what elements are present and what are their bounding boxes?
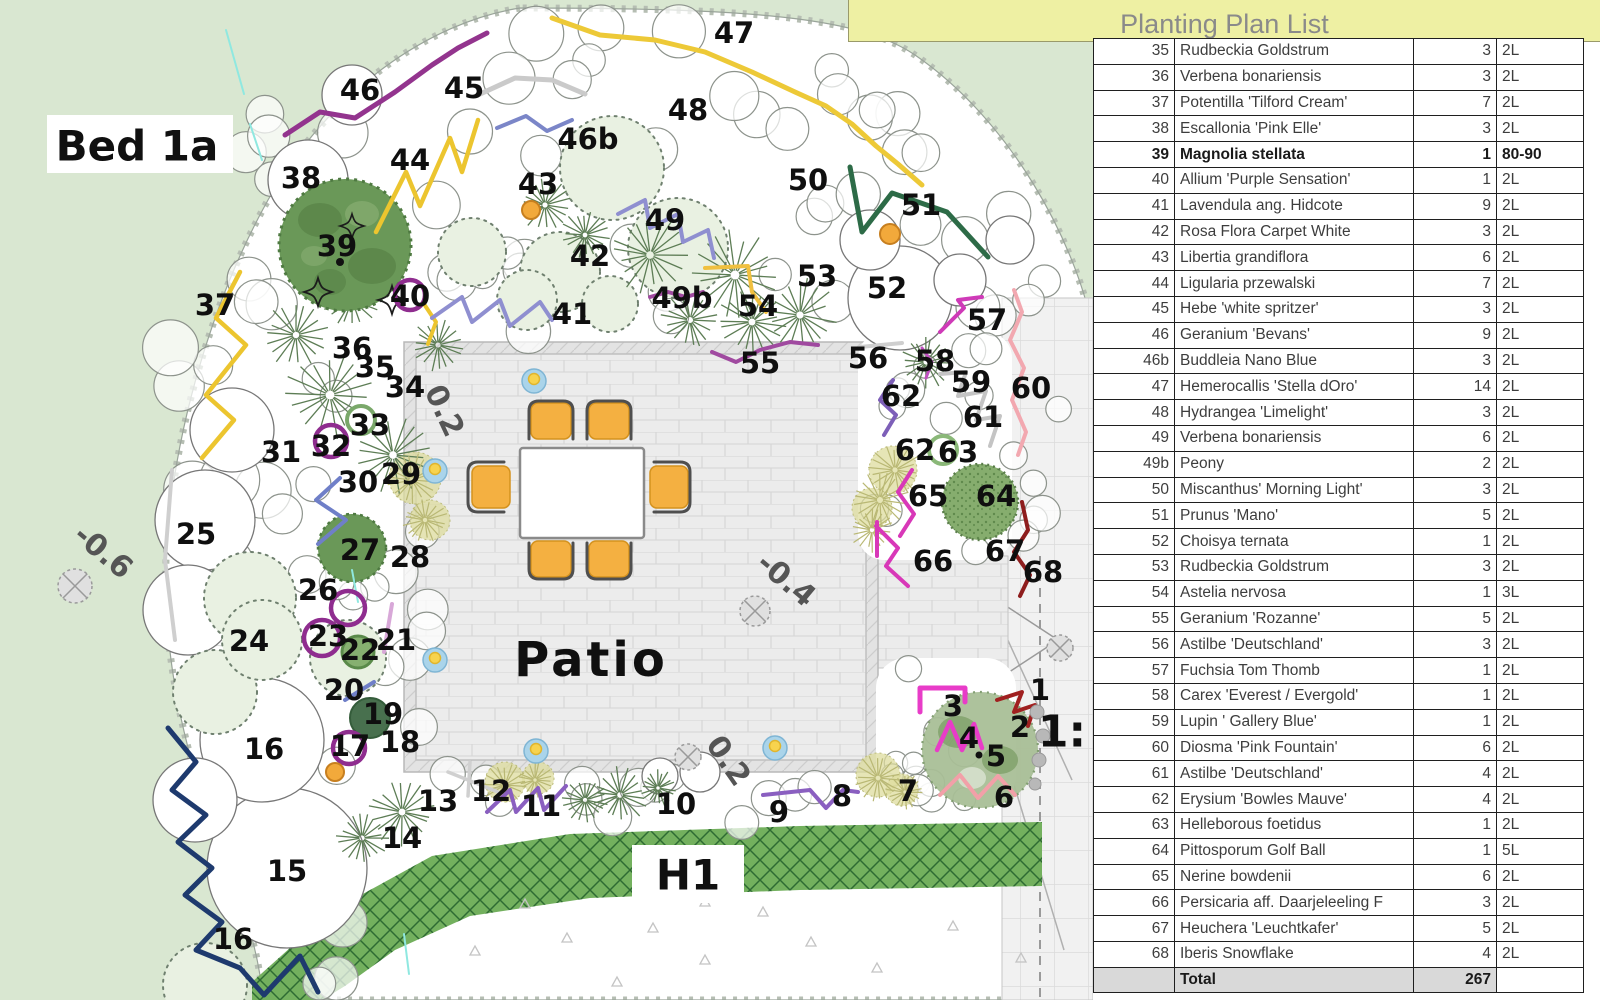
cell-name: Choisya ternata (1175, 529, 1414, 555)
cell-qty: 3 (1414, 477, 1497, 503)
cell-size: 2L (1497, 658, 1584, 684)
cell-name: Erysium 'Bowles Mauve' (1175, 787, 1414, 813)
patio-area (404, 342, 878, 772)
cell-no: 50 (1094, 477, 1175, 503)
cell-qty: 1 (1414, 580, 1497, 606)
plan-label-63: 63 (938, 435, 978, 469)
plan-label-55: 55 (740, 346, 780, 380)
plan-label-62: 62 (881, 379, 921, 413)
cell-no: 51 (1094, 503, 1175, 529)
table-row: 62Erysium 'Bowles Mauve'42L (1094, 787, 1584, 813)
cell-qty: 1 (1414, 658, 1497, 684)
cell-size: 2L (1497, 916, 1584, 942)
light-icon (522, 369, 546, 393)
plan-label-59: 59 (951, 365, 991, 399)
plan-label-49: 49 (645, 203, 685, 237)
cell-size (1497, 967, 1584, 993)
cell-qty: 3 (1414, 219, 1497, 245)
cell-name: Astilbe 'Deutschland' (1175, 761, 1414, 787)
table-row: 50Miscanthus' Morning Light'32L (1094, 477, 1584, 503)
table-row: 64Pittosporum Golf Ball15L (1094, 838, 1584, 864)
cell-name: Pittosporum Golf Ball (1175, 838, 1414, 864)
cell-size: 5L (1497, 838, 1584, 864)
plan-label-9: 9 (769, 795, 789, 829)
table-row: 40Allium 'Purple Sensation'12L (1094, 167, 1584, 193)
plan-label-49b: 49b (651, 281, 712, 315)
plan-label-22: 22 (340, 633, 380, 667)
scale-label: 1: (1038, 707, 1086, 758)
cell-no: 36 (1094, 64, 1175, 90)
cell-qty: 7 (1414, 271, 1497, 297)
cell-no: 43 (1094, 245, 1175, 271)
cell-name: Geranium 'Rozanne' (1175, 606, 1414, 632)
cell-name: Miscanthus' Morning Light' (1175, 477, 1414, 503)
cell-no: 38 (1094, 116, 1175, 142)
table-row: 35Rudbeckia Goldstrum32L (1094, 39, 1584, 65)
plan-label-60: 60 (1011, 371, 1051, 405)
cell-size: 2L (1497, 890, 1584, 916)
cell-no: 54 (1094, 580, 1175, 606)
light-icon (524, 739, 548, 763)
cell-size: 80-90 (1497, 142, 1584, 168)
plan-label-30: 30 (338, 465, 378, 499)
survey-circle-icon (1047, 635, 1073, 661)
plan-label-36: 36 (332, 331, 372, 365)
cell-size: 2L (1497, 812, 1584, 838)
cell-name: Peony (1175, 451, 1414, 477)
cell-name: Potentilla 'Tilford Cream' (1175, 90, 1414, 116)
plan-label-25: 25 (176, 517, 216, 551)
cell-qty: 3 (1414, 296, 1497, 322)
plan-label-5: 5 (986, 739, 1006, 773)
cell-name: Hydrangea 'Limelight' (1175, 400, 1414, 426)
plan-label-42: 42 (570, 239, 610, 273)
plan-label-61: 61 (963, 400, 1003, 434)
table-row: 42Rosa Flora Carpet White32L (1094, 219, 1584, 245)
survey-circle-icon (740, 596, 770, 626)
cell-name: Verbena bonariensis (1175, 64, 1414, 90)
cell-qty: 6 (1414, 864, 1497, 890)
cell-qty: 1 (1414, 838, 1497, 864)
plan-label-43: 43 (518, 167, 558, 201)
cell-qty: 7 (1414, 90, 1497, 116)
cell-size: 2L (1497, 864, 1584, 890)
plan-label-64: 64 (976, 479, 1016, 513)
cell-no: 47 (1094, 374, 1175, 400)
plan-label-28: 28 (390, 540, 430, 574)
plan-label-58: 58 (915, 344, 955, 378)
plan-label-10: 10 (656, 787, 696, 821)
stem-13b (468, 762, 470, 796)
cell-no: 46b (1094, 348, 1175, 374)
cell-qty: 1 (1414, 167, 1497, 193)
cell-name: Fuchsia Tom Thomb (1175, 658, 1414, 684)
cell-no: 45 (1094, 296, 1175, 322)
table-row: 43Libertia grandiflora62L (1094, 245, 1584, 271)
cell-no: 60 (1094, 735, 1175, 761)
plan-label-67: 67 (985, 534, 1025, 568)
plan-label-39: 39 (317, 229, 357, 263)
cell-name: Geranium 'Bevans' (1175, 322, 1414, 348)
cell-qty: 3 (1414, 116, 1497, 142)
cell-no: 59 (1094, 709, 1175, 735)
dot-52-orange (880, 224, 900, 244)
plan-label-38: 38 (281, 161, 321, 195)
table-row: 45Hebe 'white spritzer'32L (1094, 296, 1584, 322)
cell-name: Allium 'Purple Sensation' (1175, 167, 1414, 193)
plan-label-46: 46 (340, 73, 380, 107)
cell-qty: 3 (1414, 348, 1497, 374)
cell-qty: 3 (1414, 64, 1497, 90)
plan-label-48: 48 (668, 93, 708, 127)
cell-size: 2L (1497, 90, 1584, 116)
plan-label-27: 27 (340, 533, 380, 567)
plan-label-16: 16 (213, 922, 253, 956)
table-row: 39Magnolia stellata180-90 (1094, 142, 1584, 168)
table-row: 48Hydrangea 'Limelight'32L (1094, 400, 1584, 426)
table-row: 54Astelia nervosa13L (1094, 580, 1584, 606)
plan-label-50: 50 (788, 163, 828, 197)
cell-qty: 6 (1414, 735, 1497, 761)
cell-name: Lavendula ang. Hidcote (1175, 193, 1414, 219)
cell-name: Hemerocallis 'Stella dOro' (1175, 374, 1414, 400)
light-icon (423, 459, 447, 483)
cell-no (1094, 967, 1175, 993)
cell-size: 2L (1497, 554, 1584, 580)
plan-label-18: 18 (380, 725, 420, 759)
cell-qty: 4 (1414, 941, 1497, 967)
cell-no: 55 (1094, 606, 1175, 632)
dot-43-orange (522, 201, 540, 219)
bed-title-label: Bed 1a (56, 122, 219, 171)
cell-size: 2L (1497, 529, 1584, 555)
cell-qty: 1 (1414, 529, 1497, 555)
planting-list-header: Planting Plan List (848, 0, 1600, 42)
cell-name: Rudbeckia Goldstrum (1175, 554, 1414, 580)
cell-name: Total (1175, 967, 1414, 993)
dot-17-orange (326, 763, 344, 781)
cell-name: Diosma 'Pink Fountain' (1175, 735, 1414, 761)
plant-table-body: 35Rudbeckia Goldstrum32L36Verbena bonari… (1094, 39, 1584, 993)
table-row: 66Persicaria aff. Daarjeleeling F32L (1094, 890, 1584, 916)
cell-no: 49b (1094, 451, 1175, 477)
table-row: 44Ligularia przewalski72L (1094, 271, 1584, 297)
cell-qty: 6 (1414, 425, 1497, 451)
cell-no: 62 (1094, 787, 1175, 813)
cell-qty: 3 (1414, 890, 1497, 916)
plan-label-21: 21 (376, 623, 416, 657)
table-row: 37Potentilla 'Tilford Cream'72L (1094, 90, 1584, 116)
cell-qty: 3 (1414, 39, 1497, 65)
cell-size: 3L (1497, 580, 1584, 606)
plan-label-2: 2 (1010, 710, 1030, 744)
cell-size: 2L (1497, 322, 1584, 348)
plan-label-57: 57 (967, 303, 1007, 337)
cell-name: Astilbe 'Deutschland' (1175, 632, 1414, 658)
cell-size: 2L (1497, 296, 1584, 322)
cell-size: 2L (1497, 709, 1584, 735)
table-row: 58Carex 'Everest / Evergold'12L (1094, 683, 1584, 709)
cell-qty: 9 (1414, 193, 1497, 219)
plan-label-24: 24 (229, 624, 269, 658)
cell-no: 64 (1094, 838, 1175, 864)
cell-size: 2L (1497, 761, 1584, 787)
plan-label-31: 31 (261, 435, 301, 469)
cell-size: 2L (1497, 193, 1584, 219)
cell-no: 40 (1094, 167, 1175, 193)
cell-qty: 4 (1414, 787, 1497, 813)
plan-label-17: 17 (330, 729, 370, 763)
cell-qty: 3 (1414, 400, 1497, 426)
cell-no: 39 (1094, 142, 1175, 168)
table-row: 38Escallonia 'Pink Elle'32L (1094, 116, 1584, 142)
plan-label-26: 26 (298, 573, 338, 607)
light-icon (763, 736, 787, 760)
table-row: 65Nerine bowdenii62L (1094, 864, 1584, 890)
cell-name: Hebe 'white spritzer' (1175, 296, 1414, 322)
table-row: 46Geranium 'Bevans'92L (1094, 322, 1584, 348)
plan-label-54: 54 (738, 289, 778, 323)
cell-name: Rudbeckia Goldstrum (1175, 39, 1414, 65)
cell-size: 2L (1497, 219, 1584, 245)
cell-qty: 5 (1414, 916, 1497, 942)
table-row: 59Lupin ' Gallery Blue'12L (1094, 709, 1584, 735)
plan-label-1: 1 (1030, 673, 1050, 707)
cell-no: 42 (1094, 219, 1175, 245)
plan-label-12: 12 (471, 774, 511, 808)
cell-qty: 6 (1414, 245, 1497, 271)
cell-qty: 3 (1414, 554, 1497, 580)
garden-plan: 4746454446b48384339374042494150515253544… (0, 0, 1093, 1000)
plan-label-11: 11 (521, 789, 561, 823)
cell-qty: 14 (1414, 374, 1497, 400)
cell-name: Rosa Flora Carpet White (1175, 219, 1414, 245)
cell-no: 67 (1094, 916, 1175, 942)
cell-name: Ligularia przewalski (1175, 271, 1414, 297)
plan-label-53: 53 (797, 259, 837, 293)
cell-qty: 4 (1414, 761, 1497, 787)
plan-label-65: 65 (908, 479, 948, 513)
plan-label-4: 4 (959, 721, 979, 755)
cell-no: 52 (1094, 529, 1175, 555)
plan-label-41: 41 (552, 297, 592, 331)
cell-size: 2L (1497, 477, 1584, 503)
cell-name: Heuchera 'Leuchtkafer' (1175, 916, 1414, 942)
table-row: 41Lavendula ang. Hidcote92L (1094, 193, 1584, 219)
cell-name: Buddleia Nano Blue (1175, 348, 1414, 374)
cell-name: Helleborous foetidus (1175, 812, 1414, 838)
survey-circle-icon (675, 744, 701, 770)
table-row: 55Geranium 'Rozanne'52L (1094, 606, 1584, 632)
cell-size: 2L (1497, 451, 1584, 477)
cell-qty: 1 (1414, 683, 1497, 709)
cell-qty: 1 (1414, 812, 1497, 838)
patio-label: Patio (514, 632, 668, 688)
cell-qty: 1 (1414, 142, 1497, 168)
cell-name: Carex 'Everest / Evergold' (1175, 683, 1414, 709)
plan-label-62: 62 (895, 433, 935, 467)
cell-size: 2L (1497, 374, 1584, 400)
plan-label-46b: 46b (557, 122, 618, 156)
table-total-row: Total267 (1094, 967, 1584, 993)
table-row: 60Diosma 'Pink Fountain'62L (1094, 735, 1584, 761)
plan-label-15: 15 (267, 854, 307, 888)
table-row: 57Fuchsia Tom Thomb12L (1094, 658, 1584, 684)
table-row: 63Helleborous foetidus12L (1094, 812, 1584, 838)
cell-name: Verbena bonariensis (1175, 425, 1414, 451)
cell-name: Libertia grandiflora (1175, 245, 1414, 271)
cell-size: 2L (1497, 116, 1584, 142)
plan-label-44: 44 (390, 143, 430, 177)
plan-label-51: 51 (901, 188, 941, 222)
planting-list-title: Planting Plan List (1120, 10, 1329, 41)
cell-name: Persicaria aff. Daarjeleeling F (1175, 890, 1414, 916)
cell-size: 2L (1497, 425, 1584, 451)
table-row: 36Verbena bonariensis32L (1094, 64, 1584, 90)
cell-name: Lupin ' Gallery Blue' (1175, 709, 1414, 735)
cell-name: Escallonia 'Pink Elle' (1175, 116, 1414, 142)
cell-no: 48 (1094, 400, 1175, 426)
table-row: 56Astilbe 'Deutschland'32L (1094, 632, 1584, 658)
cell-size: 2L (1497, 735, 1584, 761)
plan-label-37: 37 (195, 288, 235, 322)
cell-no: 53 (1094, 554, 1175, 580)
cell-size: 2L (1497, 39, 1584, 65)
patio-table (520, 448, 644, 538)
table-row: 51Prunus 'Mano'52L (1094, 503, 1584, 529)
plan-label-6: 6 (994, 780, 1014, 814)
plan-label-47: 47 (714, 16, 754, 50)
table-row: 49Verbena bonariensis62L (1094, 425, 1584, 451)
cell-no: 66 (1094, 890, 1175, 916)
plan-label-13: 13 (418, 784, 458, 818)
plan-label-45: 45 (444, 71, 484, 105)
cell-no: 49 (1094, 425, 1175, 451)
cell-no: 37 (1094, 90, 1175, 116)
cell-qty: 5 (1414, 503, 1497, 529)
cell-no: 57 (1094, 658, 1175, 684)
garden-plan-svg: 4746454446b48384339374042494150515253544… (0, 0, 1093, 1000)
cell-name: Iberis Snowflake (1175, 941, 1414, 967)
light-icon (423, 648, 447, 672)
plan-label-20: 20 (324, 673, 364, 707)
cell-qty: 5 (1414, 606, 1497, 632)
plan-label-3: 3 (943, 689, 963, 723)
cell-no: 58 (1094, 683, 1175, 709)
hedge-h1-label: H1 (656, 851, 720, 900)
table-row: 61Astilbe 'Deutschland'42L (1094, 761, 1584, 787)
cell-size: 2L (1497, 503, 1584, 529)
plan-label-16: 16 (244, 732, 284, 766)
cell-no: 68 (1094, 941, 1175, 967)
cell-size: 2L (1497, 683, 1584, 709)
cell-qty: 267 (1414, 967, 1497, 993)
table-row: 52Choisya ternata12L (1094, 529, 1584, 555)
plan-label-33: 33 (350, 408, 390, 442)
cell-qty: 9 (1414, 322, 1497, 348)
cell-size: 2L (1497, 606, 1584, 632)
plan-label-14: 14 (382, 821, 422, 855)
table-row: 67Heuchera 'Leuchtkafer'52L (1094, 916, 1584, 942)
cell-no: 35 (1094, 39, 1175, 65)
cell-size: 2L (1497, 348, 1584, 374)
cell-size: 2L (1497, 64, 1584, 90)
plan-label-7: 7 (898, 774, 918, 808)
cell-no: 63 (1094, 812, 1175, 838)
cell-name: Prunus 'Mano' (1175, 503, 1414, 529)
cell-name: Nerine bowdenii (1175, 864, 1414, 890)
plan-label-66: 66 (913, 544, 953, 578)
table-row: 49bPeony22L (1094, 451, 1584, 477)
cell-no: 65 (1094, 864, 1175, 890)
plan-label-68: 68 (1023, 555, 1063, 589)
cell-name: Magnolia stellata (1175, 142, 1414, 168)
cell-size: 2L (1497, 787, 1584, 813)
table-row: 46bBuddleia Nano Blue32L (1094, 348, 1584, 374)
planting-plan-table: 35Rudbeckia Goldstrum32L36Verbena bonari… (1093, 38, 1584, 993)
cell-size: 2L (1497, 400, 1584, 426)
plan-label-32: 32 (311, 429, 351, 463)
table-row: 47Hemerocallis 'Stella dOro'142L (1094, 374, 1584, 400)
cell-size: 2L (1497, 271, 1584, 297)
cell-qty: 1 (1414, 709, 1497, 735)
cell-size: 2L (1497, 632, 1584, 658)
plan-label-8: 8 (832, 779, 852, 813)
cell-no: 44 (1094, 271, 1175, 297)
plan-label-56: 56 (848, 341, 888, 375)
cell-size: 2L (1497, 167, 1584, 193)
table-row: 68Iberis Snowflake42L (1094, 941, 1584, 967)
plan-label-29: 29 (381, 457, 421, 491)
cell-size: 2L (1497, 941, 1584, 967)
cell-no: 46 (1094, 322, 1175, 348)
planting-plan-page: { "title": { "text": "Planting Plan List… (0, 0, 1600, 1000)
cell-no: 41 (1094, 193, 1175, 219)
plan-label-40: 40 (390, 279, 430, 313)
cell-size: 2L (1497, 245, 1584, 271)
cell-no: 56 (1094, 632, 1175, 658)
cell-name: Astelia nervosa (1175, 580, 1414, 606)
survey-circle-icon (58, 569, 92, 603)
cell-no: 61 (1094, 761, 1175, 787)
table-row: 53Rudbeckia Goldstrum32L (1094, 554, 1584, 580)
plan-label-52: 52 (867, 271, 907, 305)
cell-qty: 2 (1414, 451, 1497, 477)
cell-qty: 3 (1414, 632, 1497, 658)
